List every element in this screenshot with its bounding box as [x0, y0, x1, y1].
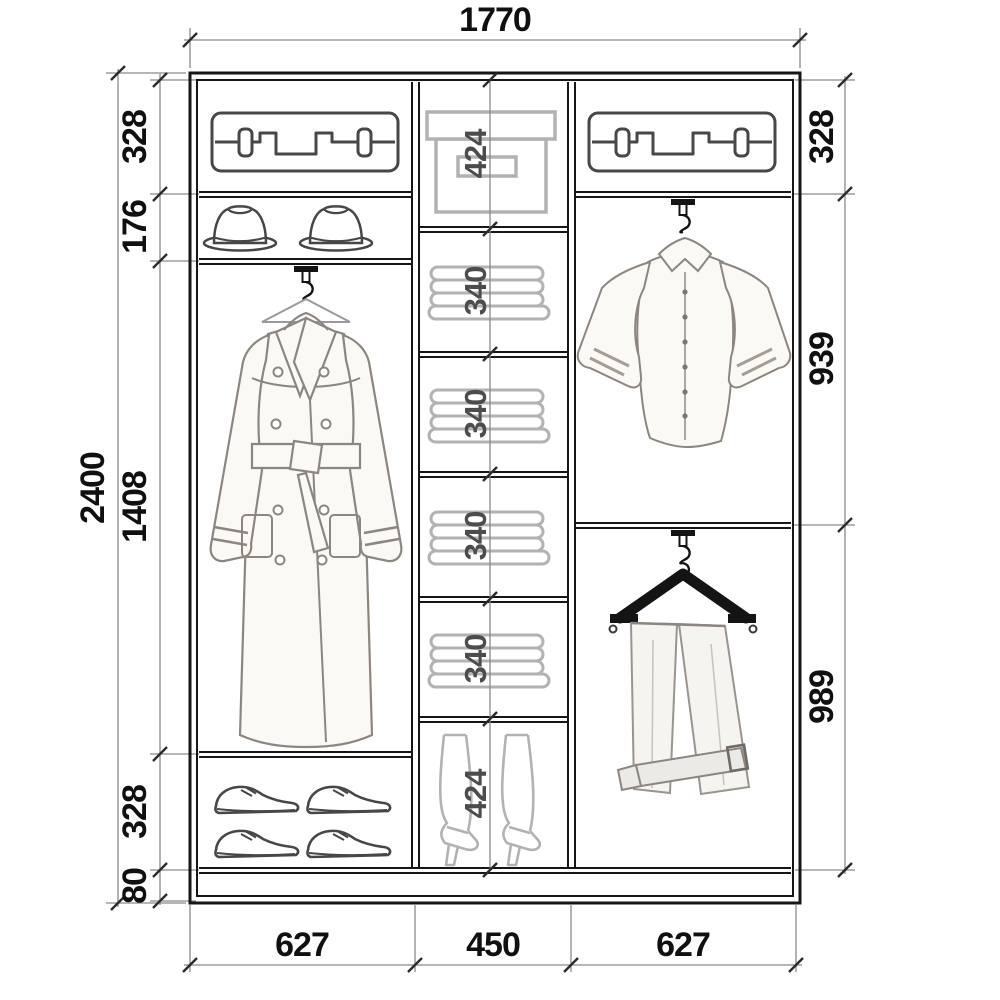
- dim-left-section: 328: [116, 785, 154, 839]
- dim-middle-section: 340: [458, 635, 493, 684]
- dress-shoe-icon: [215, 787, 298, 813]
- dim-middle-section: 424: [458, 128, 493, 178]
- dim-middle-section: 340: [458, 267, 493, 316]
- dim-middle-section: 340: [458, 512, 493, 561]
- dim-left-section: 328: [116, 110, 154, 164]
- dim-right-section: 939: [803, 332, 841, 386]
- suitcase-icon: [212, 113, 398, 171]
- dim-right-section: 328: [803, 110, 841, 164]
- dim-bottom-section: 627: [275, 926, 329, 964]
- hanger-hook-icon: [294, 266, 318, 299]
- dim-middle-section: 424: [458, 768, 493, 818]
- hanger-hook-icon: [671, 530, 695, 563]
- fedora-hat-icon: [204, 206, 276, 250]
- dim-left-section: 1408: [116, 471, 154, 543]
- dim-bottom-section: 627: [656, 926, 710, 964]
- dim-middle-section: 340: [458, 390, 493, 439]
- suitcase-icon: [589, 113, 775, 171]
- dim-top-width: 1770: [459, 1, 531, 39]
- dim-bottom-section: 450: [466, 926, 520, 964]
- dim-left-section: 80: [116, 868, 154, 904]
- wardrobe-diagram-canvas: 1770 2400 328 176 1408 328 80 424 340 34…: [0, 0, 1000, 1000]
- dim-left-outer-height: 2400: [74, 452, 112, 524]
- dim-right-section: 989: [803, 670, 841, 724]
- trousers-hanger-icon: [610, 530, 757, 794]
- hanger-hook-icon: [671, 199, 695, 232]
- dress-shoe-icon: [307, 831, 390, 857]
- wardrobe-elevation-drawing: 1770 2400 328 176 1408 328 80 424 340 34…: [0, 0, 1000, 1000]
- trench-coat-icon: [211, 266, 402, 747]
- shirt-icon: [578, 199, 791, 447]
- dress-shoe-icon: [307, 787, 390, 813]
- dim-left-section: 176: [116, 200, 154, 254]
- dress-shoe-icon: [215, 831, 298, 857]
- fedora-hat-icon: [300, 206, 372, 250]
